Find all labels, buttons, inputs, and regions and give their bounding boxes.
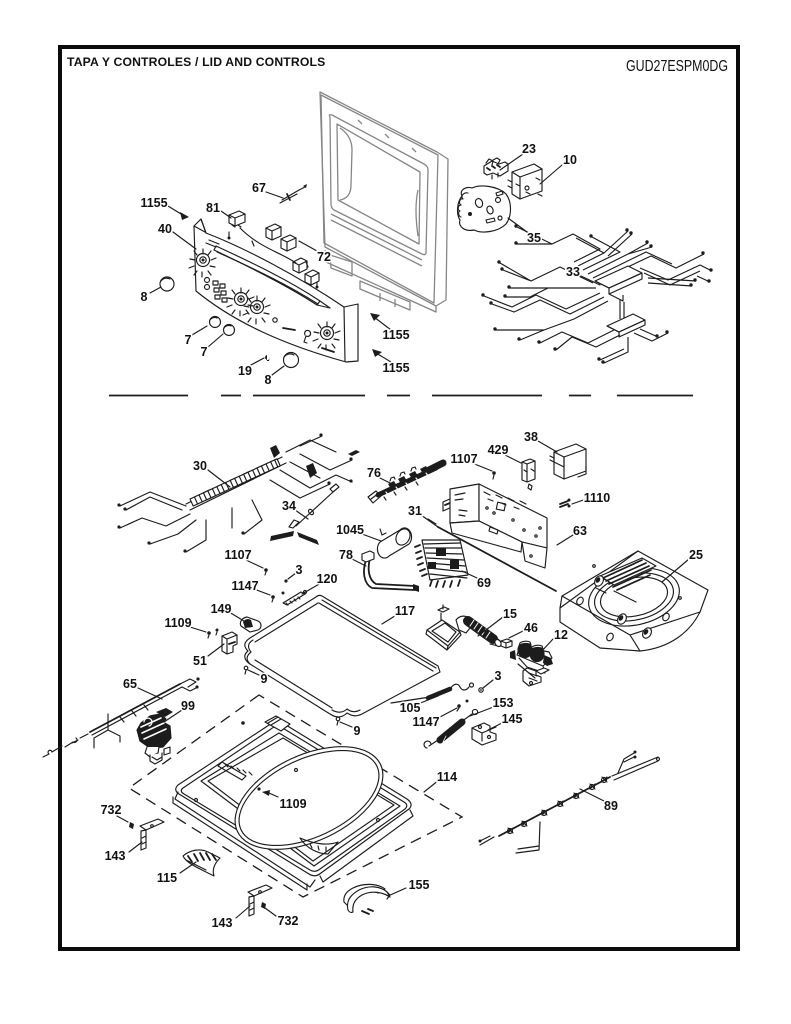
svg-text:1107: 1107 [224,548,251,562]
svg-text:1147: 1147 [231,579,258,593]
svg-text:30: 30 [193,459,207,473]
svg-text:81: 81 [206,201,220,215]
svg-text:115: 115 [157,871,177,885]
svg-text:38: 38 [524,430,538,444]
svg-text:67: 67 [252,181,266,195]
svg-text:34: 34 [282,499,296,513]
svg-text:46: 46 [524,621,538,635]
svg-text:78: 78 [339,548,353,562]
svg-text:40: 40 [158,222,172,236]
svg-text:31: 31 [408,504,422,518]
svg-text:8: 8 [265,373,272,387]
svg-text:9: 9 [261,672,268,686]
svg-text:10: 10 [563,153,577,167]
svg-text:19: 19 [238,364,252,378]
svg-text:69: 69 [477,576,491,590]
svg-text:99: 99 [181,699,195,713]
svg-text:15: 15 [503,607,517,621]
svg-text:GUD27ESPM0DG: GUD27ESPM0DG [626,58,728,75]
svg-text:TAPA Y CONTROLES / LID AND CO: TAPA Y CONTROLES / LID AND CONTROLS [67,55,325,69]
svg-text:114: 114 [437,770,457,784]
svg-text:143: 143 [212,916,233,930]
svg-text:1110: 1110 [584,491,610,505]
svg-text:732: 732 [101,803,122,817]
svg-text:117: 117 [395,604,415,618]
svg-text:1107: 1107 [450,452,477,466]
svg-text:1109: 1109 [164,616,191,630]
svg-text:25: 25 [689,548,703,562]
svg-text:145: 145 [502,712,523,726]
svg-text:1155: 1155 [382,361,409,375]
svg-text:65: 65 [123,677,137,691]
svg-text:63: 63 [573,524,587,538]
svg-text:12: 12 [554,628,568,642]
svg-text:149: 149 [211,602,232,616]
svg-text:8: 8 [141,290,148,304]
svg-text:1045: 1045 [336,523,364,537]
svg-text:1155: 1155 [382,328,409,342]
svg-text:3: 3 [296,563,303,577]
svg-text:155: 155 [409,878,430,892]
svg-text:3: 3 [495,669,502,683]
svg-text:105: 105 [400,701,421,715]
svg-text:732: 732 [278,914,299,928]
svg-text:7: 7 [201,345,208,359]
svg-text:9: 9 [354,724,361,738]
svg-text:7: 7 [185,333,192,347]
svg-text:89: 89 [604,799,618,813]
svg-text:35: 35 [527,231,541,245]
svg-text:143: 143 [105,849,126,863]
svg-text:429: 429 [488,443,509,457]
svg-text:72: 72 [317,250,331,264]
svg-text:120: 120 [317,572,338,586]
svg-text:23: 23 [522,142,536,156]
svg-text:51: 51 [193,654,207,668]
svg-text:1155: 1155 [140,196,167,210]
svg-text:153: 153 [493,696,514,710]
svg-text:76: 76 [367,466,381,480]
svg-text:1109: 1109 [279,797,306,811]
svg-text:1147: 1147 [412,715,439,729]
svg-text:33: 33 [566,265,580,279]
